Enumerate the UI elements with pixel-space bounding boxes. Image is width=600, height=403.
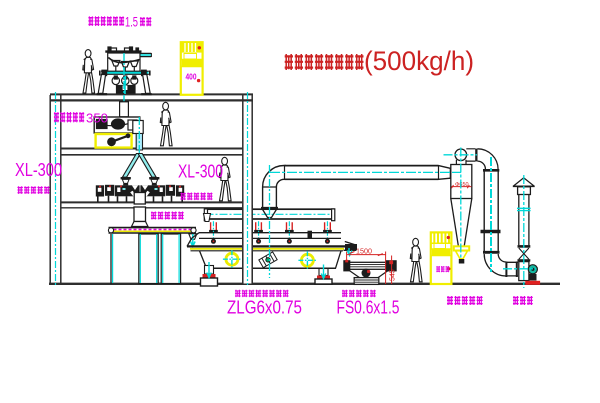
svg-text:400: 400: [186, 72, 197, 82]
svg-text:XL-300: XL-300: [15, 160, 62, 180]
svg-text:(500kg/h): (500kg/h): [364, 46, 474, 76]
svg-text:350: 350: [86, 112, 108, 126]
svg-text:FS0.6x1.5: FS0.6x1.5: [337, 298, 400, 318]
svg-text:1500: 1500: [356, 246, 372, 255]
svg-text:545: 545: [390, 269, 397, 281]
svg-text:Φ650: Φ650: [455, 182, 469, 188]
svg-text:1.5: 1.5: [125, 15, 138, 30]
svg-text:XL-300: XL-300: [178, 162, 223, 182]
svg-text:ZLG6x0.75: ZLG6x0.75: [227, 298, 302, 318]
